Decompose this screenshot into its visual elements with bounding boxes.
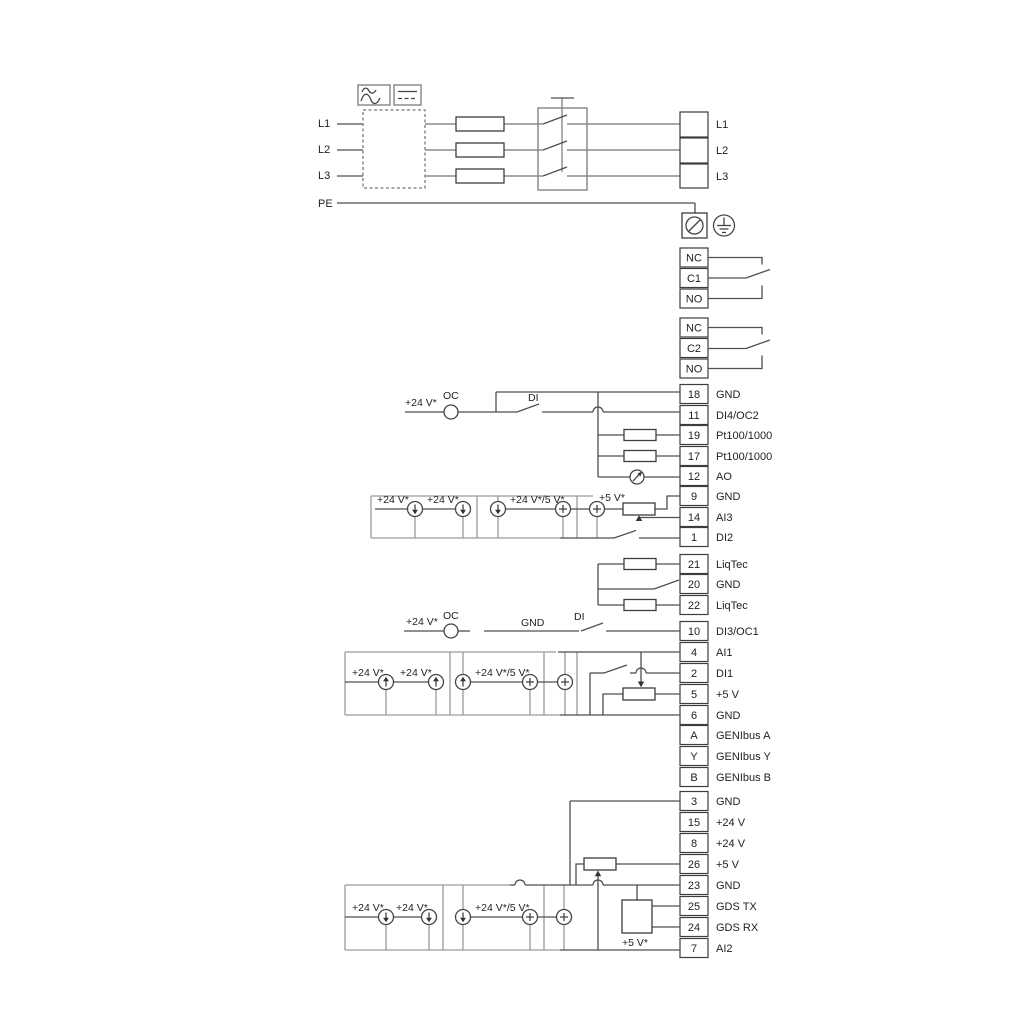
oc-label: OC <box>443 390 459 402</box>
relay1-block: NC C1 NO <box>680 248 770 308</box>
svg-text:DI2: DI2 <box>716 532 733 544</box>
di4-oc2-section: +24 V* OC DI <box>405 390 680 484</box>
svg-text:23: 23 <box>688 880 700 892</box>
svg-text:15: 15 <box>688 817 700 829</box>
terminal-row-19: 19Pt100/1000 <box>680 426 772 445</box>
gds-sensor-box <box>622 900 652 933</box>
voltage-source-icon <box>523 675 538 690</box>
terminal-row-22: 22LiqTec <box>680 596 748 615</box>
svg-text:9: 9 <box>691 491 697 503</box>
di3-oc1-section: +24 V* OC GND DI <box>404 610 680 638</box>
svg-text:DI4/OC2: DI4/OC2 <box>716 410 759 422</box>
current-source-icon <box>379 910 394 925</box>
ai1-wires <box>345 652 680 715</box>
terminal-row-15: 15+24 V <box>680 813 746 832</box>
terminal-row-10: 10DI3/OC1 <box>680 622 759 641</box>
ai3-potentiometer <box>623 503 655 521</box>
liqtec-wires <box>598 564 680 605</box>
svg-text:22: 22 <box>688 600 700 612</box>
v5-label: +5 V* <box>622 937 648 949</box>
svg-text:GND: GND <box>716 389 741 401</box>
svg-text:14: 14 <box>688 512 700 524</box>
pt100-sensor-17 <box>598 451 680 462</box>
svg-text:+24 V: +24 V <box>716 817 746 829</box>
power-input-section: L1 L2 L3 PE <box>318 85 735 238</box>
v24-5v-label: +24 V*/5 V* <box>475 902 530 914</box>
svg-text:5: 5 <box>691 689 697 701</box>
relay2-contact <box>708 328 770 369</box>
power-in-label-pe: PE <box>318 198 333 210</box>
svg-text:DI3/OC1: DI3/OC1 <box>716 626 759 638</box>
terminal-row-20: 20GND <box>680 575 741 594</box>
svg-text:4: 4 <box>691 647 697 659</box>
terminal-row-18: 18GND <box>680 385 741 404</box>
terminal-row-24: 24GDS RX <box>680 918 759 937</box>
mains-terminal-block: L1 L2 L3 <box>680 112 728 188</box>
ai1-section: +24 V* +24 V* +24 V*/5 V* <box>345 652 680 715</box>
voltage-source-icon <box>558 675 573 690</box>
power-in-label-l1: L1 <box>318 118 330 130</box>
relay2-c2: C2 <box>687 343 701 355</box>
svg-text:24: 24 <box>688 922 700 934</box>
terminal-row-4: 4AI1 <box>680 643 733 662</box>
terminal-row-B: BGENIbus B <box>680 768 771 787</box>
power-out-label-l1: L1 <box>716 119 728 131</box>
open-collector-icon <box>444 405 458 419</box>
svg-text:GND: GND <box>716 491 741 503</box>
power-out-label-l2: L2 <box>716 145 728 157</box>
liqtec-section <box>598 559 680 611</box>
relay2-nc: NC <box>686 323 702 335</box>
current-source-icon <box>422 910 437 925</box>
current-source-icon <box>408 502 423 517</box>
terminal-row-8: 8+24 V <box>680 834 746 853</box>
di-label: DI <box>574 611 585 623</box>
svg-text:19: 19 <box>688 430 700 442</box>
terminal-row-1: 1DI2 <box>680 528 733 547</box>
ai2-section: +24 V* +24 V* +24 V*/5 V* +5 V* <box>345 801 680 950</box>
wiring-diagram: L1 L2 L3 PE <box>0 0 1024 1024</box>
svg-text:2: 2 <box>691 668 697 680</box>
svg-text:+5 V: +5 V <box>716 689 740 701</box>
svg-text:GDS RX: GDS RX <box>716 922 759 934</box>
terminal-row-14: 14AI3 <box>680 508 733 527</box>
svg-text:12: 12 <box>688 471 700 483</box>
earth-ground-icon <box>714 215 735 236</box>
current-source-icon <box>456 910 471 925</box>
oc-label: OC <box>443 610 459 622</box>
relay2-block: NC C2 NO <box>680 318 770 378</box>
voltage-source-icon <box>523 910 538 925</box>
power-in-label-l3: L3 <box>318 170 330 182</box>
voltage-source-icon <box>556 502 571 517</box>
svg-text:A: A <box>690 730 698 742</box>
terminal-row-Y: YGENIbus Y <box>680 747 771 766</box>
svg-text:10: 10 <box>688 626 700 638</box>
svg-text:11: 11 <box>688 410 699 422</box>
analog-output-meter-icon <box>598 470 680 484</box>
fuse-l2 <box>456 143 504 157</box>
terminal-row-9: 9GND <box>680 487 741 506</box>
current-source-icon <box>456 502 471 517</box>
fuse-l1 <box>456 117 504 131</box>
fuse-l3 <box>456 169 504 183</box>
terminal-row-6: 6GND <box>680 706 741 725</box>
current-source-icon <box>456 675 471 690</box>
svg-text:LiqTec: LiqTec <box>716 559 748 571</box>
terminal-row-3: 3GND <box>680 792 741 811</box>
gnd-label: GND <box>521 617 545 629</box>
pt100-sensor-19 <box>598 430 680 441</box>
svg-text:Y: Y <box>690 751 698 763</box>
terminal-row-17: 17Pt100/1000 <box>680 447 772 466</box>
diagram-canvas: L1 L2 L3 PE <box>0 0 1024 1024</box>
liqtec-sensor-21 <box>624 559 656 570</box>
v24-label: +24 V* <box>377 494 409 506</box>
svg-text:GENIbus A: GENIbus A <box>716 730 771 742</box>
terminal-row-11: 11DI4/OC2 <box>680 406 759 425</box>
voltage-source-icon <box>557 910 572 925</box>
v5-label: +5 V* <box>599 492 625 504</box>
di-label: DI <box>528 392 539 404</box>
power-wires <box>337 124 695 213</box>
ac-symbol-icon <box>358 85 390 105</box>
svg-text:AI3: AI3 <box>716 512 733 524</box>
terminal-row-25: 25GDS TX <box>680 897 757 916</box>
relay1-no: NO <box>686 294 703 306</box>
svg-text:8: 8 <box>691 838 697 850</box>
svg-text:+24 V: +24 V <box>716 838 746 850</box>
v24-label: +24 V* <box>427 494 459 506</box>
terminal-row-A: AGENIbus A <box>680 726 771 745</box>
svg-text:7: 7 <box>691 943 697 955</box>
power-out-label-l3: L3 <box>716 171 728 183</box>
svg-text:+5 V: +5 V <box>716 859 740 871</box>
open-collector-icon <box>444 624 458 638</box>
relay2-no: NO <box>686 364 703 376</box>
terminal-row-7: 7AI2 <box>680 939 733 958</box>
terminal-strip: 18GND 11DI4/OC2 19Pt100/1000 17Pt100/100… <box>680 385 772 958</box>
terminal-row-2: 2DI1 <box>680 664 733 683</box>
svg-text:6: 6 <box>691 710 697 722</box>
svg-text:GND: GND <box>716 796 741 808</box>
voltage-source-icon <box>590 502 605 517</box>
svg-text:21: 21 <box>688 559 700 571</box>
current-source-icon <box>379 675 394 690</box>
svg-text:20: 20 <box>688 579 700 591</box>
svg-text:GND: GND <box>716 579 741 591</box>
svg-text:GDS TX: GDS TX <box>716 901 757 913</box>
svg-text:18: 18 <box>688 389 700 401</box>
terminal-row-21: 21LiqTec <box>680 555 748 574</box>
terminal-row-12: 12AO <box>680 467 732 486</box>
svg-text:3: 3 <box>691 796 697 808</box>
svg-text:B: B <box>690 772 697 784</box>
svg-text:Pt100/1000: Pt100/1000 <box>716 430 772 442</box>
terminal-row-5: 5+5 V <box>680 685 740 704</box>
power-in-label-l2: L2 <box>318 144 330 156</box>
svg-text:GENIbus B: GENIbus B <box>716 772 771 784</box>
v24-label: +24 V* <box>406 616 438 628</box>
current-source-icon <box>429 675 444 690</box>
relay1-contact <box>708 258 770 299</box>
terminal-row-23: 23GND <box>680 876 741 895</box>
relay1-nc: NC <box>686 253 702 265</box>
v24-label: +24 V* <box>352 902 384 914</box>
v24-label: +24 V* <box>400 667 432 679</box>
svg-text:AI1: AI1 <box>716 647 733 659</box>
svg-text:Pt100/1000: Pt100/1000 <box>716 451 772 463</box>
svg-text:25: 25 <box>688 901 700 913</box>
svg-text:DI1: DI1 <box>716 668 733 680</box>
ai3-section: +24 V* +24 V* +24 V*/5 V* +5 V* <box>371 492 680 538</box>
ai1-potentiometer <box>623 682 655 701</box>
svg-text:GENIbus Y: GENIbus Y <box>716 751 771 763</box>
liqtec-sensor-22 <box>624 600 656 611</box>
svg-text:GND: GND <box>716 880 741 892</box>
v24-label: +24 V* <box>352 667 384 679</box>
relay1-c1: C1 <box>687 273 701 285</box>
svg-text:AI2: AI2 <box>716 943 733 955</box>
svg-text:GND: GND <box>716 710 741 722</box>
converter-dashed-box <box>363 110 425 188</box>
ai2-potentiometer <box>584 858 616 876</box>
current-source-icon <box>491 502 506 517</box>
v24-5v-label: +24 V*/5 V* <box>510 494 565 506</box>
v24-5v-label: +24 V*/5 V* <box>475 667 530 679</box>
dc-symbol-icon <box>394 85 421 105</box>
svg-text:26: 26 <box>688 859 700 871</box>
terminal-row-26: 26+5 V <box>680 855 740 874</box>
svg-text:LiqTec: LiqTec <box>716 600 748 612</box>
pe-screw-terminal-icon <box>682 213 707 238</box>
v24-label: +24 V* <box>405 397 437 409</box>
svg-text:1: 1 <box>691 532 697 544</box>
svg-text:AO: AO <box>716 471 732 483</box>
svg-text:17: 17 <box>688 451 700 463</box>
